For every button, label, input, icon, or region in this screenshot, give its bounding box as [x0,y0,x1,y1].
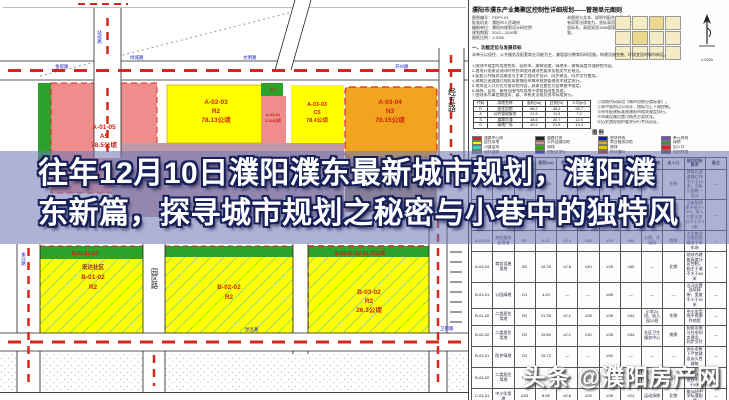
control-table-cell: ≤54 [620,309,641,325]
control-table-cell: ≥35 [599,325,620,346]
control-table-cell: 配套设施与住宅同步建设、同步交付 [684,325,705,346]
svg-text:B-02-02: B-02-02 [217,284,241,291]
control-table-cell: ≥35 [599,309,620,325]
svg-text:C5: C5 [313,110,320,116]
svg-text:B-01-02: B-01-02 [81,274,105,281]
svg-text:G1: G1 [270,87,277,92]
control-table-cell: ≤80 [620,252,641,283]
control-table-cell: ≤54 [620,325,641,346]
svg-text:A-01-05: A-01-05 [92,124,116,131]
control-table-cell: B-02-02 [472,325,493,346]
control-table-row: B-01-01公园绿地G14.20——≥85———沿河设置连续绿带，宽度不小于3… [472,283,727,309]
control-table-cell: 社区卫生服务中心 [642,325,663,346]
headline-banner: 往年12月10日濮阳濮东最新城市规划，濮阳濮 东新篇，探寻城市规划之秘密与小巷中… [0,151,729,244]
general-notes-list: 1.图则中规定的用地性质、容积率、建筑密度、绿地率、建筑高度为强制性内容。2.地… [472,64,724,98]
svg-text:开州路: 开州路 [395,63,409,70]
general-note: 7.图则未尽事宜按国家、省、市有关法规及技术标准执行。 [472,93,724,98]
control-table-cell: — [705,325,726,346]
control-table-cell: 商务设施用地 [493,252,514,283]
control-table-cell: 地块内建筑高度分区控制，临主干道不大于80米 [684,252,705,283]
control-table-cell: — [705,283,726,309]
headline-line-1: 往年12月10日濮阳濮东最新城市规划，濮阳濮 [38,154,656,194]
svg-text:金堤路: 金堤路 [55,63,69,70]
section-heading: 一、功能定位与发展目标 [472,45,522,51]
svg-text:26.3公顷: 26.3公顷 [356,306,382,314]
svg-text:N3: N3 [386,108,395,115]
control-table-row: B-01-02二类居住用地R221.35≤2.2≤28≥35≤54小学24班、幼… [472,309,727,325]
control-table-cell: A-03-04 [472,252,493,283]
control-table-cell: 防护绿地 [493,346,514,367]
svg-text:A-03-01: A-03-01 [266,112,281,117]
control-table-cell: 15.78 [535,252,556,283]
control-table-cell: R2 [514,325,535,346]
control-table-cell: B-03-01 [472,346,493,367]
svg-text:A-03-03: A-03-03 [307,102,327,108]
control-table-cell: B-01-01 [472,283,493,309]
watermark: 头条 @濮阳房产网 [523,358,721,392]
control-table-cell: 二类居住用地 [493,325,514,346]
control-table-cell: ≥25 [599,252,620,283]
svg-text:1.32公顷: 1.32公顷 [265,117,281,123]
svg-text:B-03-01 G2 15.72公顷: B-03-01 G2 15.72公顷 [335,250,385,257]
svg-text:园区路: 园区路 [151,268,159,290]
svg-text:78.13公顷: 78.13公顷 [201,116,231,124]
section-paragraph: 本单元以居住、公共服务及配套商业功能为主，兼容部分教育科研设施，构建设施完善、环… [472,52,672,57]
sheet-title: 濮阳市濮东产业集聚区控制性详细规划——管理单元图则 [472,5,728,14]
control-table-cell: ≤28 [578,309,599,325]
landuse-balance-table: 代码用地名称面积(ha)比例(%)人均(㎡)R居住用地86.246.228.7A… [473,100,591,129]
control-table-cell: — [642,283,663,309]
control-table-cell: 中小学用地 [493,389,514,400]
control-table-cell: 南侧 [663,325,684,346]
svg-text:站前路: 站前路 [97,29,103,45]
control-table-cell: — [705,309,726,325]
north-arrow-icon [692,14,722,52]
control-table-row: B-02-02二类居住用地R219.80≤2.2≤30≥35≤54社区卫生服务中… [472,325,727,346]
svg-text:A-03-04: A-03-04 [378,99,402,106]
control-table-cell: B2 [514,252,535,283]
control-table-cell: ≤30 [578,325,599,346]
control-table-cell: G1 [514,283,535,309]
control-table-cell: — [642,252,663,283]
parcel-green-strip-west [38,83,51,161]
control-table-cell: 二类居住用地 [493,309,514,325]
control-table-cell: — [663,283,684,309]
svg-text:78.4公顷: 78.4公顷 [306,116,328,124]
control-table-cell: 沿河设置连续绿带，宽度不小于30米 [684,283,705,309]
watermark-brand: 头条 [523,358,571,392]
svg-text:R2: R2 [89,284,98,291]
svg-text:78.5公顷: 78.5公顷 [91,141,117,149]
balance-table-cell: 13.4 [568,123,591,129]
svg-text:A5: A5 [100,133,109,140]
control-table-cell: — [705,252,726,283]
watermark-handle: @濮阳房产网 [578,358,721,392]
supplementary-note: ⑤历史遗存保护要求另行专项论证。 [597,120,723,125]
svg-text:昆吾路: 昆吾路 [245,326,259,333]
scale-note: 1:2000 [691,57,723,62]
control-table-cell: C-01-01 [472,389,493,400]
sheet-meta-block: 图则编号：PDPY-03 批准机关：濮阳市人民政府 编制单位：濮阳市规划设计研究… [472,15,564,40]
control-table-cell: 小学24班、幼儿园12班 [642,309,663,325]
control-table-cell: ≤2.2 [557,325,578,346]
control-table-row: A-03-04商务设施用地B215.78≤2.8≤40≥25≤80—北侧地块内建… [472,252,727,283]
parcel-group-south [0,246,468,392]
svg-text:78.15公顷: 78.15公顷 [375,116,405,124]
headline-line-2: 东新篇，探寻城市规划之秘密与小巷中的独特风 [38,194,679,234]
svg-text:卫都路: 卫都路 [440,325,454,332]
control-table-cell: — [578,283,599,309]
north-arrow-box: 1:2000 [691,14,723,64]
supplementary-notes-list: ①用地代码采用《城市用地分类标准》。②表中面积以公顷计，指标为上下限控制。③停车… [597,100,723,125]
control-table-cell: 东侧 [663,309,684,325]
control-table-cell: 4.20 [535,283,556,309]
balance-table-cell: 绿地广场 [488,123,523,129]
control-table-cell: 21.35 [535,309,556,325]
svg-text:B-01-01 G2: B-01-01 G2 [72,251,98,257]
control-table-cell: B-03-02 [472,367,493,388]
control-table-cell: ≤2.2 [557,309,578,325]
control-table-cell: 公园绿地 [493,283,514,309]
balance-table-cell: 21.6 [546,123,568,129]
screenshot-stage: A-01-05 A5 78.5公顷 A-02-03 R2 78.13公顷 G1 … [0,0,729,400]
svg-text:绿城路: 绿城路 [130,54,144,61]
svg-text:R2: R2 [365,298,374,305]
control-table-cell: 北侧 [663,252,684,283]
svg-text:R2: R2 [225,294,234,301]
unbuilt-land-texture [0,352,468,392]
svg-text:R2: R2 [212,108,221,115]
svg-text:文明路: 文明路 [243,54,257,61]
control-table-cell: 19.80 [535,325,556,346]
control-table-cell: 二类居住用地 [493,367,514,388]
balance-table-cell: 40.2 [522,123,545,129]
svg-text:B-03-02: B-03-02 [357,289,381,296]
balance-table-row: G绿地广场40.221.613.4 [474,123,591,129]
control-table-cell: — [620,283,641,309]
control-table-cell: ≥85 [599,283,620,309]
balance-table-cell: G [474,123,488,129]
control-table-cell: R2 [514,309,535,325]
svg-text:振兴路: 振兴路 [21,251,27,267]
control-table-cell: ≤40 [578,252,599,283]
svg-text:A-02-03: A-02-03 [204,99,228,106]
svg-text:宏达社区: 宏达社区 [82,263,105,271]
control-table-cell: 中小学用地不得挪作他用 [684,309,705,325]
control-table-cell: B-01-02 [472,309,493,325]
control-table-cell: ≤2.8 [557,252,578,283]
svg-text:经五路: 经五路 [448,87,457,112]
control-table-cell: — [557,283,578,309]
